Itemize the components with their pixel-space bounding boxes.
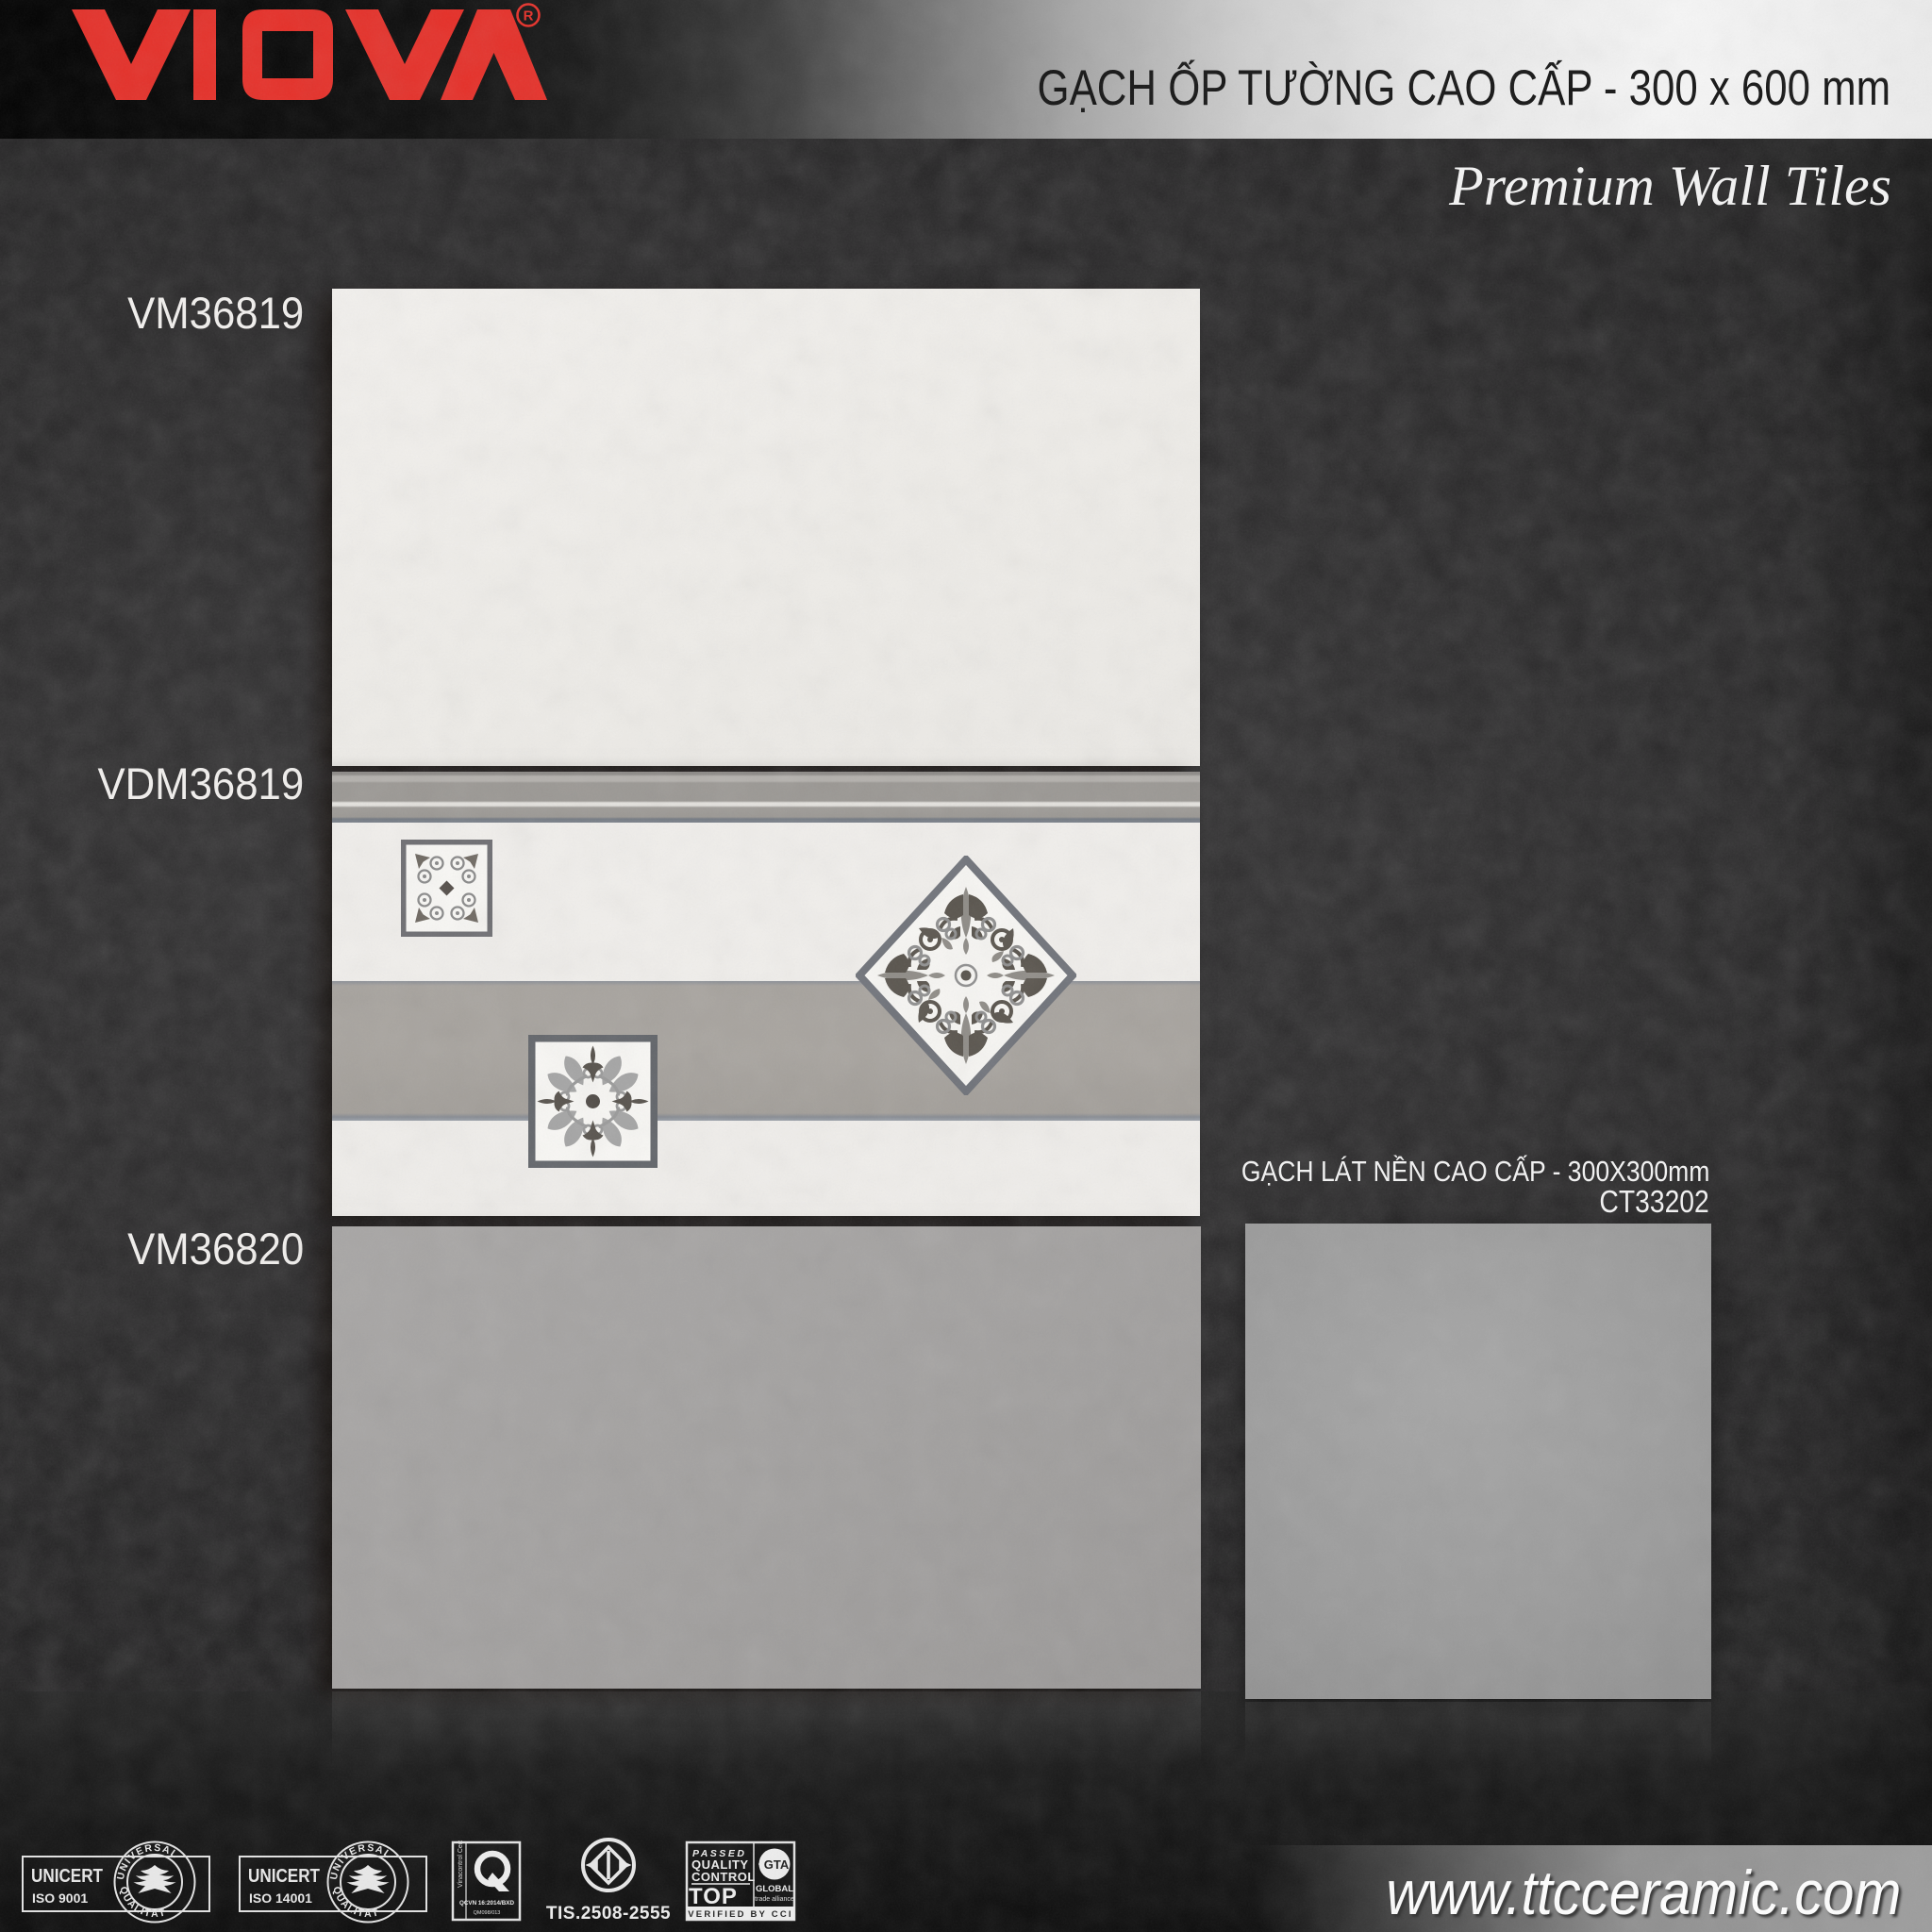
svg-text:ISO 14001: ISO 14001 bbox=[249, 1890, 312, 1906]
svg-text:QM098/013: QM098/013 bbox=[474, 1910, 501, 1916]
svg-text:GTA: GTA bbox=[764, 1857, 790, 1872]
svg-text:UNIVERSAL: UNIVERSAL bbox=[328, 1842, 394, 1881]
svg-text:UNICERT: UNICERT bbox=[248, 1866, 320, 1887]
svg-text:UNICERT: UNICERT bbox=[31, 1866, 103, 1887]
svg-text:UNIVERSAL: UNIVERSAL bbox=[115, 1842, 181, 1881]
svg-text:trade alliance: trade alliance bbox=[755, 1896, 794, 1903]
svg-text:GLOBAL: GLOBAL bbox=[756, 1884, 793, 1894]
svg-text:ISO 9001: ISO 9001 bbox=[32, 1890, 88, 1906]
svg-text:Vinacontrol Cert: Vinacontrol Cert bbox=[458, 1840, 464, 1888]
svg-text:TIS.2508-2555: TIS.2508-2555 bbox=[546, 1904, 671, 1924]
svg-text:VERIFIED BY CCI: VERIFIED BY CCI bbox=[688, 1909, 792, 1920]
svg-text:CONTROL: CONTROL bbox=[691, 1870, 756, 1884]
svg-text:R: R bbox=[524, 8, 534, 25]
svg-text:QCVN 16:2014/BXD: QCVN 16:2014/BXD bbox=[459, 1900, 515, 1907]
svg-text:TOP: TOP bbox=[689, 1884, 738, 1909]
